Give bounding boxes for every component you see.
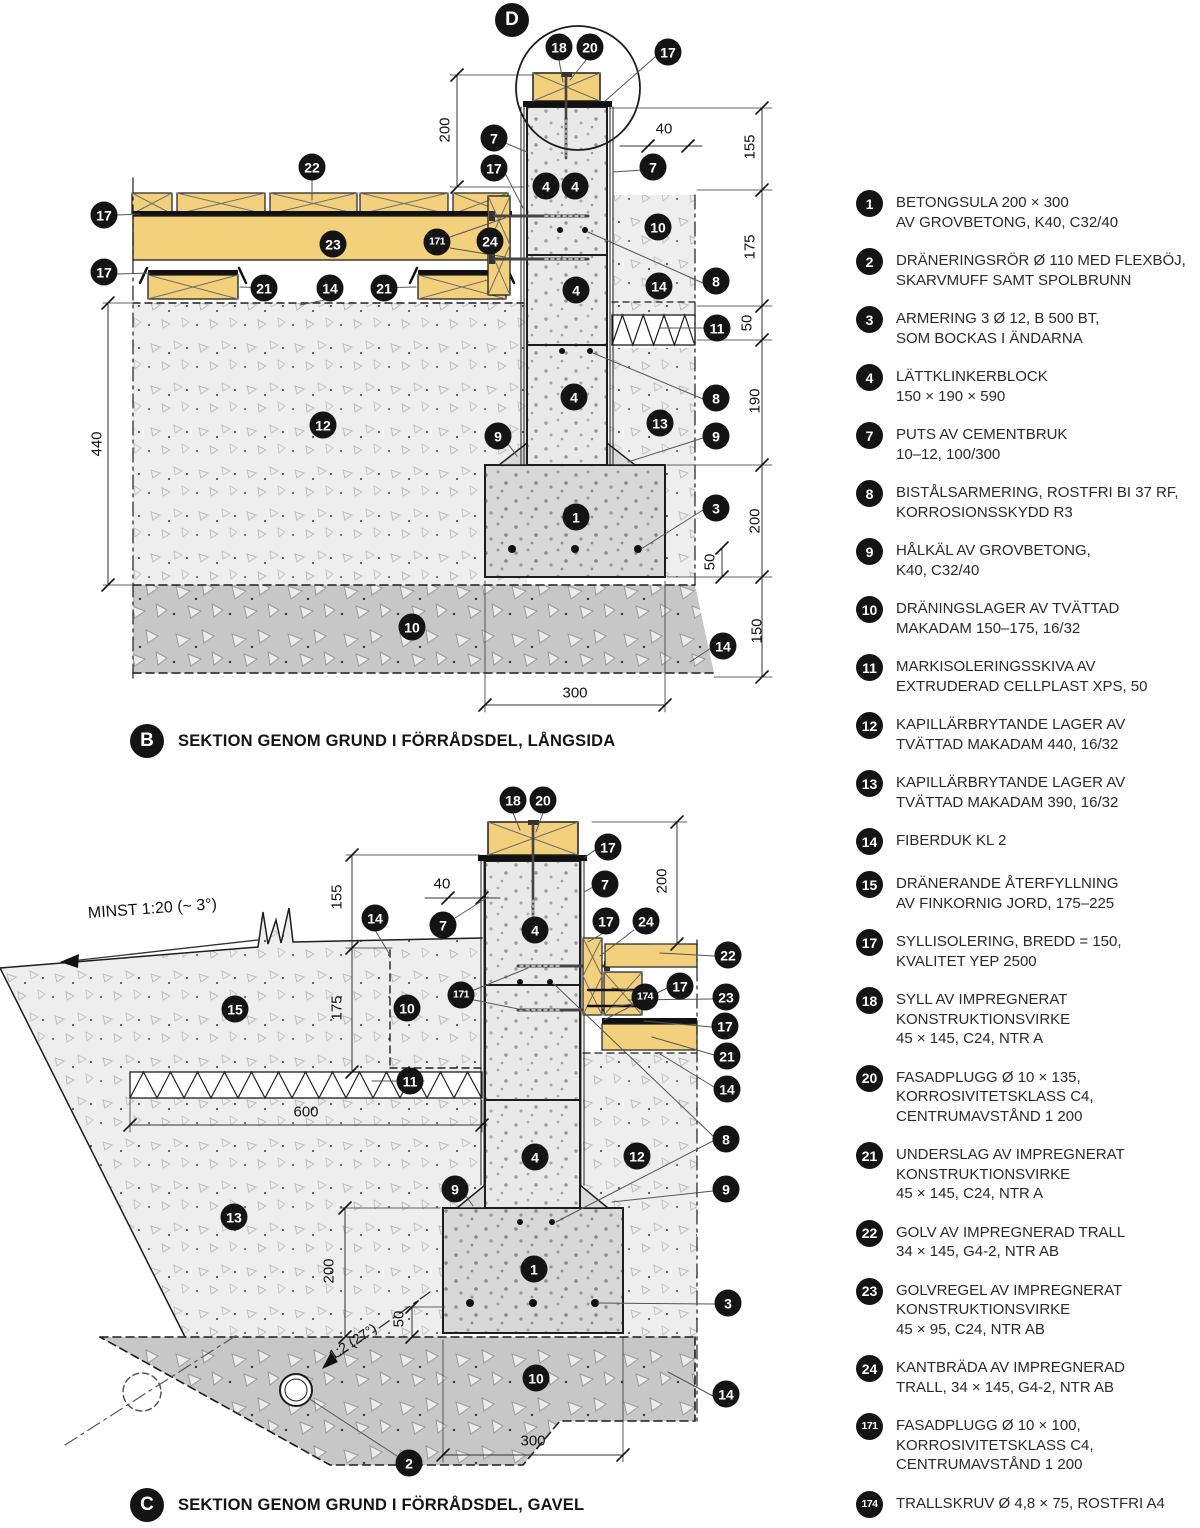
dimension-label: 190 <box>747 388 764 413</box>
callout: 22 <box>715 942 742 969</box>
deck-boards <box>132 193 508 214</box>
drawing-sheet: 18 20 17 7 17 4 4 7 22 17 23 171 24 17 2… <box>0 0 1200 1528</box>
legend-item-number: 14 <box>856 828 883 855</box>
callout: 17 <box>595 834 622 861</box>
legend-item-number: 23 <box>856 1278 883 1305</box>
callout: 10 <box>645 214 672 241</box>
callout: 14 <box>713 1381 740 1408</box>
legend-item: 23 GOLVREGEL AV IMPREGNERAT KONSTRUKTION… <box>856 1278 1200 1340</box>
callout: 17 <box>667 973 694 1000</box>
detail-d-label: D <box>495 3 529 37</box>
legend-item-text: MARKISOLERINGSSKIVA AV EXTRUDERAD CELLPL… <box>896 654 1147 696</box>
legend-item-number: 174 <box>856 1491 883 1518</box>
legend-item-number: 22 <box>856 1220 883 1247</box>
section-c-letter: C <box>130 1488 164 1522</box>
callout: 8 <box>703 268 730 295</box>
dimension-label: 155 <box>329 884 346 909</box>
callout: 8 <box>713 1126 740 1153</box>
callout: 14 <box>646 273 673 300</box>
legend-item: 12 KAPILLÄRBRYTANDE LAGER AV TVÄTTAD MAK… <box>856 712 1200 754</box>
callout: 12 <box>624 1143 651 1170</box>
callout: 14 <box>362 905 389 932</box>
legend-item-number: 171 <box>856 1413 883 1440</box>
legend-item-text: HÅLKÄL AV GROVBETONG, K40, C32/40 <box>896 538 1091 580</box>
dimension-label: 200 <box>747 508 764 533</box>
legend-item-text: BISTÅLSARMERING, ROSTFRI BI 37 RF, KORRO… <box>896 480 1179 522</box>
legend-item-number: 13 <box>856 770 883 797</box>
legend-item-number: 17 <box>856 929 883 956</box>
callout: 171 <box>424 229 451 256</box>
legend-item: 17 SYLLISOLERING, BREDD = 150, KVALITET … <box>856 929 1200 971</box>
legend-item-text: GOLVREGEL AV IMPREGNERAT KONSTRUKTIONSVI… <box>896 1278 1122 1340</box>
dimension-label: 40 <box>656 121 673 138</box>
section-c-caption: C SEKTION GENOM GRUND I FÖRRÅDSDEL, GAVE… <box>130 1488 584 1522</box>
callout: 17 <box>712 1013 739 1040</box>
legend-item: 18 SYLL AV IMPREGNERAT KONSTRUKTIONSVIRK… <box>856 987 1200 1049</box>
legend-item-text: FIBERDUK KL 2 <box>896 828 1006 851</box>
legend-item: 174 TRALLSKRUV Ø 4,8 × 75, ROSTFRI A4 <box>856 1491 1200 1518</box>
section-c-title: SEKTION GENOM GRUND I FÖRRÅDSDEL, GAVEL <box>178 1496 584 1515</box>
callout: 4 <box>562 173 589 200</box>
dimension-label: 50 <box>702 554 719 571</box>
legend-item-text: DRÄNERINGSRÖR Ø 110 MED FLEXBÖJ, SKARVMU… <box>896 248 1186 290</box>
legend-item: 11 MARKISOLERINGSSKIVA AV EXTRUDERAD CEL… <box>856 654 1200 696</box>
legend-item-text: FASADPLUGG Ø 10 × 135, KORROSIVITETSKLAS… <box>896 1065 1094 1127</box>
legend-item-text: GOLV AV IMPREGNERAD TRALL 34 × 145, G4-2… <box>896 1220 1125 1262</box>
legend-item-text: DRÄNERANDE ÅTERFYLLNING AV FINKORNIG JOR… <box>896 871 1119 913</box>
legend-item-number: 21 <box>856 1142 883 1169</box>
legend-item-text: UNDERSLAG AV IMPREGNERAT KONSTRUKTIONSVI… <box>896 1142 1125 1204</box>
callout: 1 <box>521 1256 548 1283</box>
dimension-label: 200 <box>654 868 671 893</box>
legend-item-text: KAPILLÄRBRYTANDE LAGER AV TVÄTTAD MAKADA… <box>896 770 1125 812</box>
callout: 9 <box>703 423 730 450</box>
callout: 14 <box>710 633 737 660</box>
legend-item-number: 24 <box>856 1355 883 1382</box>
callout: 23 <box>320 231 347 258</box>
legend-item: 22 GOLV AV IMPREGNERAD TRALL 34 × 145, G… <box>856 1220 1200 1262</box>
callout: 20 <box>577 34 604 61</box>
callout: 171 <box>448 982 475 1009</box>
callout: 9 <box>713 1176 740 1203</box>
legend-item: 10 DRÄNINGSLAGER AV TVÄTTAD MAKADAM 150–… <box>856 596 1200 638</box>
legend-item-number: 20 <box>856 1065 883 1092</box>
legend-item-text: ARMERING 3 Ø 12, B 500 BT, SOM BOCKAS I … <box>896 306 1099 348</box>
callout: 4 <box>533 173 560 200</box>
callout: 10 <box>523 1365 550 1392</box>
dimension-label: 150 <box>749 618 766 643</box>
callout: 21 <box>251 275 278 302</box>
legend-item: 7 PUTS AV CEMENTBRUK 10–12, 100/300 <box>856 422 1200 464</box>
callout: 1 <box>563 504 590 531</box>
callout: 4 <box>522 917 549 944</box>
legend-item-number: 12 <box>856 712 883 739</box>
dimension-label: 40 <box>434 876 451 893</box>
dimension-label: 440 <box>89 431 106 456</box>
callout: 17 <box>593 908 620 935</box>
legend-item-number: 11 <box>856 654 883 681</box>
legend-item-text: LÄTTKLINKERBLOCK 150 × 190 × 590 <box>896 364 1048 406</box>
dimension-label: 600 <box>293 1104 318 1121</box>
drainage-band-c <box>100 1337 695 1465</box>
callout: 7 <box>481 125 508 152</box>
callout: 14 <box>714 1076 741 1103</box>
callout: 4 <box>563 277 590 304</box>
legend-item: 3 ARMERING 3 Ø 12, B 500 BT, SOM BOCKAS … <box>856 306 1200 348</box>
legend-item: 2 DRÄNERINGSRÖR Ø 110 MED FLEXBÖJ, SKARV… <box>856 248 1200 290</box>
sill-insulation-strip <box>133 211 512 216</box>
dimension-label: 200 <box>321 1258 338 1283</box>
callout: 17 <box>481 155 508 182</box>
callout: 10 <box>394 995 421 1022</box>
legend-item-number: 18 <box>856 987 883 1014</box>
dimension-label: 300 <box>520 1433 545 1450</box>
section-b-caption: B SEKTION GENOM GRUND I FÖRRÅDSDEL, LÅNG… <box>130 724 615 758</box>
callout: 4 <box>522 1144 549 1171</box>
callout: 24 <box>477 228 504 255</box>
legend-item-text: DRÄNINGSLAGER AV TVÄTTAD MAKADAM 150–175… <box>896 596 1119 638</box>
legend-item: 171 FASADPLUGG Ø 10 × 100, KORROSIVITETS… <box>856 1413 1200 1475</box>
legend-item-number: 1 <box>856 190 883 217</box>
legend-item: 15 DRÄNERANDE ÅTERFYLLNING AV FINKORNIG … <box>856 871 1200 913</box>
backfill-ground <box>0 908 482 1337</box>
legend-item-number: 7 <box>856 422 883 449</box>
callout: 13 <box>221 1204 248 1231</box>
callout: 8 <box>703 385 730 412</box>
legend-item-text: SYLLISOLERING, BREDD = 150, KVALITET YEP… <box>896 929 1122 971</box>
legend-item-number: 2 <box>856 248 883 275</box>
dimension-label: 200 <box>437 117 454 142</box>
callout: 14 <box>317 275 344 302</box>
callout: 18 <box>546 34 573 61</box>
dimension-label: 175 <box>742 234 759 259</box>
legend-item-text: TRALLSKRUV Ø 4,8 × 75, ROSTFRI A4 <box>896 1491 1165 1514</box>
legend-item: 9 HÅLKÄL AV GROVBETONG, K40, C32/40 <box>856 538 1200 580</box>
callout: 7 <box>430 912 457 939</box>
callout: 21 <box>371 275 398 302</box>
callout: 23 <box>713 984 740 1011</box>
legend-item: 20 FASADPLUGG Ø 10 × 135, KORROSIVITETSK… <box>856 1065 1200 1127</box>
callout: 10 <box>399 614 426 641</box>
callout: 4 <box>561 384 588 411</box>
callout: 7 <box>640 154 667 181</box>
callout: 22 <box>299 154 326 181</box>
callout: 17 <box>655 39 682 66</box>
dimension-label: 155 <box>742 134 759 159</box>
legend: 1 BETONGSULA 200 × 300 AV GROVBETONG, K4… <box>856 190 1200 1518</box>
legend-item: 14 FIBERDUK KL 2 <box>856 828 1200 855</box>
section-b-title: SEKTION GENOM GRUND I FÖRRÅDSDEL, LÅNGSI… <box>178 732 615 751</box>
legend-item: 1 BETONGSULA 200 × 300 AV GROVBETONG, K4… <box>856 190 1200 232</box>
callout: 12 <box>310 412 337 439</box>
callout: 17 <box>91 202 118 229</box>
legend-item: 24 KANTBRÄDA AV IMPREGNERAD TRALL, 34 × … <box>856 1355 1200 1397</box>
callout: 20 <box>530 787 557 814</box>
callout: 15 <box>222 996 249 1023</box>
legend-item-text: KAPILLÄRBRYTANDE LAGER AV TVÄTTAD MAKADA… <box>896 712 1125 754</box>
capillary-layer-12 <box>133 303 527 585</box>
callout: 17 <box>91 259 118 286</box>
legend-item-text: KANTBRÄDA AV IMPREGNERAD TRALL, 34 × 145… <box>896 1355 1125 1397</box>
section-b-letter: B <box>130 724 164 758</box>
callout: 18 <box>500 787 527 814</box>
dimension-label: 50 <box>739 315 756 332</box>
pipe-alt-dashed <box>123 1373 161 1411</box>
dimension-label: 300 <box>562 685 587 702</box>
dimension-label: 50 <box>391 1311 408 1328</box>
callout: 9 <box>485 423 512 450</box>
legend-item-number: 4 <box>856 364 883 391</box>
legend-item-number: 10 <box>856 596 883 623</box>
callout: 7 <box>592 871 619 898</box>
legend-item-number: 15 <box>856 871 883 898</box>
callout: 174 <box>632 984 659 1011</box>
legend-item-text: FASADPLUGG Ø 10 × 100, KORROSIVITETSKLAS… <box>896 1413 1094 1475</box>
callout: 13 <box>647 410 674 437</box>
legend-item: 4 LÄTTKLINKERBLOCK 150 × 190 × 590 <box>856 364 1200 406</box>
legend-item-number: 3 <box>856 306 883 333</box>
legend-item: 8 BISTÅLSARMERING, ROSTFRI BI 37 RF, KOR… <box>856 480 1200 522</box>
callout: 3 <box>703 495 730 522</box>
legend-item-text: PUTS AV CEMENTBRUK 10–12, 100/300 <box>896 422 1067 464</box>
legend-item-text: BETONGSULA 200 × 300 AV GROVBETONG, K40,… <box>896 190 1118 232</box>
legend-item: 13 KAPILLÄRBRYTANDE LAGER AV TVÄTTAD MAK… <box>856 770 1200 812</box>
callout: 21 <box>714 1043 741 1070</box>
legend-item-number: 8 <box>856 480 883 507</box>
legend-item-text: SYLL AV IMPREGNERAT KONSTRUKTIONSVIRKE 4… <box>896 987 1070 1049</box>
legend-item-number: 9 <box>856 538 883 565</box>
callout: 2 <box>396 1450 423 1477</box>
callout: 11 <box>704 315 731 342</box>
callout: 24 <box>633 908 660 935</box>
callout: 11 <box>397 1068 424 1095</box>
callout: 3 <box>715 1290 742 1317</box>
dimension-label: 175 <box>329 995 346 1020</box>
legend-item: 21 UNDERSLAG AV IMPREGNERAT KONSTRUKTION… <box>856 1142 1200 1204</box>
sill-insulation <box>523 101 612 107</box>
callout: 9 <box>442 1176 469 1203</box>
